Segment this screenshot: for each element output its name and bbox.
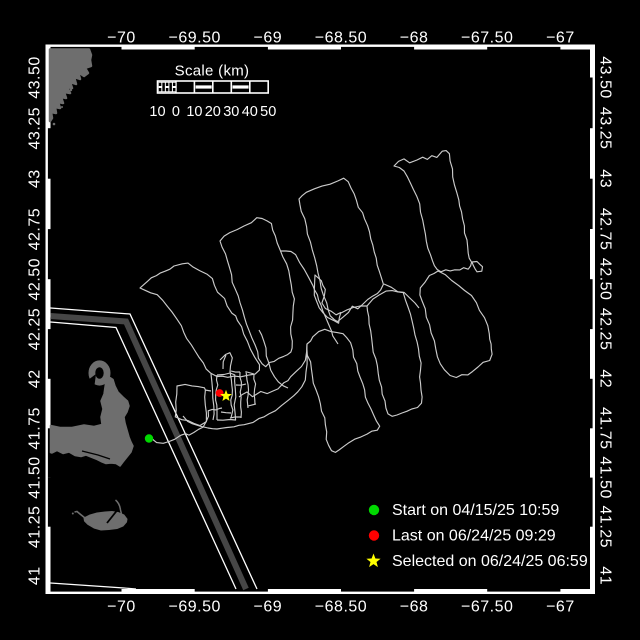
svg-text:−69.50: −69.50 [169,599,221,616]
svg-text:−68.50: −68.50 [315,29,367,46]
svg-text:43.25: 43.25 [597,107,614,150]
svg-text:−68.50: −68.50 [315,599,367,616]
svg-text:41: 41 [597,566,614,585]
svg-text:41.50: 41.50 [597,456,614,499]
svg-text:−67: −67 [546,29,575,46]
svg-text:10: 10 [149,104,165,120]
svg-text:41.75: 41.75 [27,407,44,450]
svg-text:−67.50: −67.50 [461,29,513,46]
svg-text:−70: −70 [107,599,136,616]
svg-text:43: 43 [27,169,44,188]
svg-text:43.50: 43.50 [27,56,44,99]
svg-text:0: 0 [172,104,180,120]
svg-text:−69: −69 [253,29,282,46]
svg-text:41: 41 [27,566,44,585]
svg-text:42.25: 42.25 [27,308,44,351]
svg-text:−68: −68 [400,599,429,616]
svg-text:Scale (km): Scale (km) [175,63,250,80]
svg-text:43.50: 43.50 [597,56,614,99]
svg-text:42.50: 42.50 [27,258,44,301]
svg-text:20: 20 [205,104,221,120]
svg-text:42.25: 42.25 [597,308,614,351]
svg-text:50: 50 [260,104,276,120]
svg-text:41.25: 41.25 [597,506,614,549]
svg-text:40: 40 [242,104,258,120]
svg-text:42.50: 42.50 [597,258,614,301]
svg-text:−67: −67 [546,599,575,616]
svg-text:Start on 04/15/25 10:59: Start on 04/15/25 10:59 [392,502,559,519]
svg-text:−69.50: −69.50 [169,29,221,46]
svg-text:10: 10 [186,104,202,120]
svg-text:30: 30 [223,104,239,120]
svg-text:41.75: 41.75 [597,407,614,450]
svg-text:42.75: 42.75 [597,208,614,251]
svg-text:Last on 06/24/25 09:29: Last on 06/24/25 09:29 [392,528,556,545]
svg-text:41.50: 41.50 [27,456,44,499]
svg-text:−68: −68 [400,29,429,46]
svg-text:−69: −69 [253,599,282,616]
svg-text:−67.50: −67.50 [461,599,513,616]
svg-text:42: 42 [597,369,614,388]
svg-text:43: 43 [597,169,614,188]
svg-text:Selected on 06/24/25 06:59: Selected on 06/24/25 06:59 [392,553,588,570]
svg-text:42.75: 42.75 [27,208,44,251]
svg-text:42: 42 [27,369,44,388]
svg-text:43.25: 43.25 [27,107,44,150]
svg-text:41.25: 41.25 [27,506,44,549]
svg-text:−70: −70 [107,29,136,46]
